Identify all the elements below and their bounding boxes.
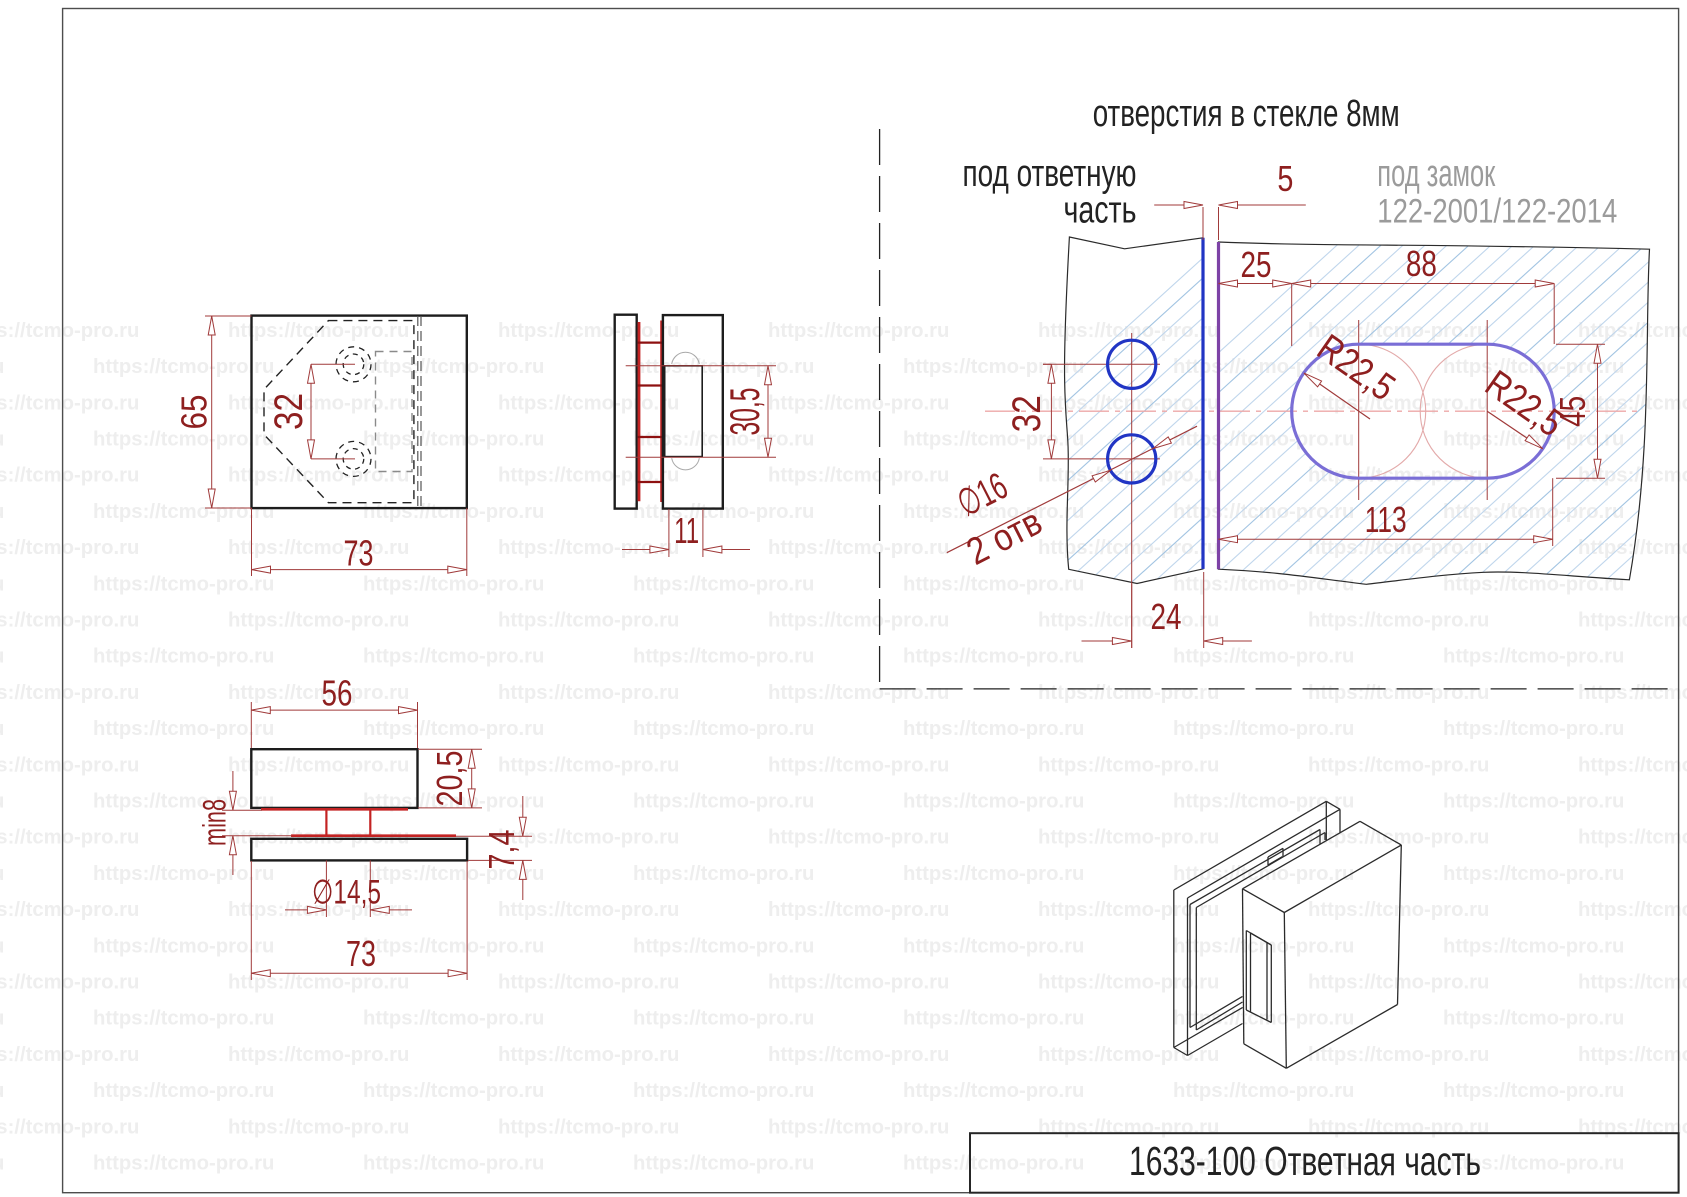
svg-text:https://tcmo-pro.ru: https://tcmo-pro.ru <box>1578 754 1687 776</box>
svg-text:https://tcmo-pro.ru: https://tcmo-pro.ru <box>363 646 544 668</box>
svg-text:https://tcmo-pro.ru: https://tcmo-pro.ru <box>1038 537 1219 559</box>
svg-text:https://tcmo-pro.ru: https://tcmo-pro.ru <box>498 1044 679 1066</box>
svg-text:https://tcmo-pro.ru: https://tcmo-pro.ru <box>363 718 544 740</box>
svg-text:https://tcmo-pro.ru: https://tcmo-pro.ru <box>0 646 4 668</box>
svg-text:https://tcmo-pro.ru: https://tcmo-pro.ru <box>0 429 4 451</box>
svg-text:https://tcmo-pro.ru: https://tcmo-pro.ru <box>1308 682 1489 704</box>
svg-text:https://tcmo-pro.ru: https://tcmo-pro.ru <box>1173 935 1354 957</box>
svg-text:https://tcmo-pro.ru: https://tcmo-pro.ru <box>363 501 544 523</box>
svg-text:https://tcmo-pro.ru: https://tcmo-pro.ru <box>1038 899 1219 921</box>
svg-text:https://tcmo-pro.ru: https://tcmo-pro.ru <box>93 1008 274 1030</box>
svg-text:https://tcmo-pro.ru: https://tcmo-pro.ru <box>0 573 4 595</box>
svg-text:https://tcmo-pro.ru: https://tcmo-pro.ru <box>633 646 814 668</box>
svg-text:https://tcmo-pro.ru: https://tcmo-pro.ru <box>363 1008 544 1030</box>
svg-text:https://tcmo-pro.ru: https://tcmo-pro.ru <box>903 646 1084 668</box>
svg-text:https://tcmo-pro.ru: https://tcmo-pro.ru <box>0 863 4 885</box>
svg-text:https://tcmo-pro.ru: https://tcmo-pro.ru <box>0 972 139 994</box>
svg-text:https://tcmo-pro.ru: https://tcmo-pro.ru <box>1038 754 1219 776</box>
svg-text:https://tcmo-pro.ru: https://tcmo-pro.ru <box>768 827 949 849</box>
svg-text:https://tcmo-pro.ru: https://tcmo-pro.ru <box>228 754 409 776</box>
svg-text:https://tcmo-pro.ru: https://tcmo-pro.ru <box>1308 899 1489 921</box>
svg-text:https://tcmo-pro.ru: https://tcmo-pro.ru <box>768 320 949 342</box>
svg-text:https://tcmo-pro.ru: https://tcmo-pro.ru <box>768 899 949 921</box>
svg-text:https://tcmo-pro.ru: https://tcmo-pro.ru <box>1578 827 1687 849</box>
svg-text:https://tcmo-pro.ru: https://tcmo-pro.ru <box>1443 1008 1624 1030</box>
svg-text:https://tcmo-pro.ru: https://tcmo-pro.ru <box>0 320 139 342</box>
svg-text:https://tcmo-pro.ru: https://tcmo-pro.ru <box>903 935 1084 957</box>
svg-text:https://tcmo-pro.ru: https://tcmo-pro.ru <box>1038 972 1219 994</box>
svg-text:https://tcmo-pro.ru: https://tcmo-pro.ru <box>0 501 4 523</box>
svg-text:https://tcmo-pro.ru: https://tcmo-pro.ru <box>1443 935 1624 957</box>
svg-text:https://tcmo-pro.ru: https://tcmo-pro.ru <box>498 682 679 704</box>
svg-text:32: 32 <box>1005 395 1049 432</box>
svg-text:73: 73 <box>346 933 376 974</box>
svg-text:https://tcmo-pro.ru: https://tcmo-pro.ru <box>903 429 1084 451</box>
svg-text:https://tcmo-pro.ru: https://tcmo-pro.ru <box>228 1044 409 1066</box>
svg-text:https://tcmo-pro.ru: https://tcmo-pro.ru <box>1578 682 1687 704</box>
svg-text:https://tcmo-pro.ru: https://tcmo-pro.ru <box>0 610 139 632</box>
svg-text:https://tcmo-pro.ru: https://tcmo-pro.ru <box>1443 573 1624 595</box>
svg-text:https://tcmo-pro.ru: https://tcmo-pro.ru <box>1173 573 1354 595</box>
svg-text:7,4: 7,4 <box>481 830 522 870</box>
svg-text:https://tcmo-pro.ru: https://tcmo-pro.ru <box>228 972 409 994</box>
svg-text:https://tcmo-pro.ru: https://tcmo-pro.ru <box>228 682 409 704</box>
svg-text:https://tcmo-pro.ru: https://tcmo-pro.ru <box>903 791 1084 813</box>
svg-text:https://tcmo-pro.ru: https://tcmo-pro.ru <box>0 754 139 776</box>
svg-text:https://tcmo-pro.ru: https://tcmo-pro.ru <box>1038 610 1219 632</box>
svg-text:https://tcmo-pro.ru: https://tcmo-pro.ru <box>903 1080 1084 1102</box>
svg-text:https://tcmo-pro.ru: https://tcmo-pro.ru <box>498 610 679 632</box>
svg-text:https://tcmo-pro.ru: https://tcmo-pro.ru <box>0 356 4 378</box>
svg-text:https://tcmo-pro.ru: https://tcmo-pro.ru <box>1443 791 1624 813</box>
svg-text:https://tcmo-pro.ru: https://tcmo-pro.ru <box>0 935 4 957</box>
svg-text:https://tcmo-pro.ru: https://tcmo-pro.ru <box>903 863 1084 885</box>
svg-text:https://tcmo-pro.ru: https://tcmo-pro.ru <box>363 935 544 957</box>
svg-text:https://tcmo-pro.ru: https://tcmo-pro.ru <box>1578 972 1687 994</box>
svg-text:113: 113 <box>1365 499 1407 540</box>
svg-text:32: 32 <box>267 393 311 430</box>
svg-text:https://tcmo-pro.ru: https://tcmo-pro.ru <box>0 1080 4 1102</box>
svg-text:https://tcmo-pro.ru: https://tcmo-pro.ru <box>1038 682 1219 704</box>
svg-text:https://tcmo-pro.ru: https://tcmo-pro.ru <box>0 1044 139 1066</box>
svg-text:https://tcmo-pro.ru: https://tcmo-pro.ru <box>633 791 814 813</box>
svg-text:https://tcmo-pro.ru: https://tcmo-pro.ru <box>1308 1044 1489 1066</box>
svg-text:https://tcmo-pro.ru: https://tcmo-pro.ru <box>0 1116 139 1138</box>
svg-text:https://tcmo-pro.ru: https://tcmo-pro.ru <box>903 718 1084 740</box>
svg-text:https://tcmo-pro.ru: https://tcmo-pro.ru <box>0 1008 4 1030</box>
svg-text:https://tcmo-pro.ru: https://tcmo-pro.ru <box>1308 827 1489 849</box>
svg-text:https://tcmo-pro.ru: https://tcmo-pro.ru <box>633 573 814 595</box>
svg-text:https://tcmo-pro.ru: https://tcmo-pro.ru <box>228 537 409 559</box>
svg-text:https://tcmo-pro.ru: https://tcmo-pro.ru <box>768 465 949 487</box>
svg-text:https://tcmo-pro.ru: https://tcmo-pro.ru <box>0 537 139 559</box>
svg-text:https://tcmo-pro.ru: https://tcmo-pro.ru <box>363 573 544 595</box>
svg-text:https://tcmo-pro.ru: https://tcmo-pro.ru <box>1443 718 1624 740</box>
svg-text:https://tcmo-pro.ru: https://tcmo-pro.ru <box>93 863 274 885</box>
svg-text:https://tcmo-pro.ru: https://tcmo-pro.ru <box>1173 1080 1354 1102</box>
svg-text:https://tcmo-pro.ru: https://tcmo-pro.ru <box>1443 646 1624 668</box>
svg-text:https://tcmo-pro.ru: https://tcmo-pro.ru <box>498 320 679 342</box>
svg-text:https://tcmo-pro.ru: https://tcmo-pro.ru <box>498 392 679 414</box>
svg-text:https://tcmo-pro.ru: https://tcmo-pro.ru <box>768 972 949 994</box>
svg-text:https://tcmo-pro.ru: https://tcmo-pro.ru <box>363 429 544 451</box>
svg-text:https://tcmo-pro.ru: https://tcmo-pro.ru <box>93 501 274 523</box>
svg-text:88: 88 <box>1406 243 1437 284</box>
svg-text:25: 25 <box>1241 244 1272 285</box>
svg-text:https://tcmo-pro.ru: https://tcmo-pro.ru <box>768 682 949 704</box>
svg-text:https://tcmo-pro.ru: https://tcmo-pro.ru <box>633 935 814 957</box>
svg-text:https://tcmo-pro.ru: https://tcmo-pro.ru <box>0 899 139 921</box>
svg-text:https://tcmo-pro.ru: https://tcmo-pro.ru <box>0 791 4 813</box>
svg-text:https://tcmo-pro.ru: https://tcmo-pro.ru <box>0 682 139 704</box>
svg-text:https://tcmo-pro.ru: https://tcmo-pro.ru <box>633 1153 814 1175</box>
svg-text:5: 5 <box>1277 158 1293 199</box>
svg-text:отверстия в стекле 8мм: отверстия в стекле 8мм <box>1093 93 1400 135</box>
svg-text:https://tcmo-pro.ru: https://tcmo-pro.ru <box>228 465 409 487</box>
svg-text:https://tcmo-pro.ru: https://tcmo-pro.ru <box>768 610 949 632</box>
svg-text:https://tcmo-pro.ru: https://tcmo-pro.ru <box>228 1116 409 1138</box>
svg-text:20,5: 20,5 <box>429 751 470 807</box>
svg-text:min8: min8 <box>197 799 233 846</box>
svg-text:https://tcmo-pro.ru: https://tcmo-pro.ru <box>0 718 4 740</box>
svg-text:https://tcmo-pro.ru: https://tcmo-pro.ru <box>1038 1116 1219 1138</box>
svg-text:https://tcmo-pro.ru: https://tcmo-pro.ru <box>633 863 814 885</box>
svg-text:https://tcmo-pro.ru: https://tcmo-pro.ru <box>1308 754 1489 776</box>
svg-text:122-2001/122-2014: 122-2001/122-2014 <box>1377 193 1617 231</box>
svg-text:https://tcmo-pro.ru: https://tcmo-pro.ru <box>1578 1116 1687 1138</box>
svg-text:https://tcmo-pro.ru: https://tcmo-pro.ru <box>498 465 679 487</box>
svg-text:https://tcmo-pro.ru: https://tcmo-pro.ru <box>93 1153 274 1175</box>
svg-text:https://tcmo-pro.ru: https://tcmo-pro.ru <box>0 1153 4 1175</box>
svg-text:30,5: 30,5 <box>721 388 768 436</box>
svg-text:часть: часть <box>1064 190 1137 232</box>
svg-text:https://tcmo-pro.ru: https://tcmo-pro.ru <box>903 1153 1084 1175</box>
svg-text:https://tcmo-pro.ru: https://tcmo-pro.ru <box>498 1116 679 1138</box>
svg-text:https://tcmo-pro.ru: https://tcmo-pro.ru <box>363 356 544 378</box>
svg-text:∅14,5: ∅14,5 <box>312 874 381 912</box>
svg-text:https://tcmo-pro.ru: https://tcmo-pro.ru <box>498 899 679 921</box>
svg-text:https://tcmo-pro.ru: https://tcmo-pro.ru <box>903 356 1084 378</box>
svg-text:https://tcmo-pro.ru: https://tcmo-pro.ru <box>1443 1080 1624 1102</box>
svg-text:https://tcmo-pro.ru: https://tcmo-pro.ru <box>1578 1044 1687 1066</box>
svg-text:https://tcmo-pro.ru: https://tcmo-pro.ru <box>768 1044 949 1066</box>
svg-text:https://tcmo-pro.ru: https://tcmo-pro.ru <box>1578 610 1687 632</box>
svg-text:https://tcmo-pro.ru: https://tcmo-pro.ru <box>498 754 679 776</box>
svg-text:https://tcmo-pro.ru: https://tcmo-pro.ru <box>363 1080 544 1102</box>
svg-text:https://tcmo-pro.ru: https://tcmo-pro.ru <box>768 754 949 776</box>
svg-text:https://tcmo-pro.ru: https://tcmo-pro.ru <box>363 1153 544 1175</box>
svg-text:под замок: под замок <box>1377 153 1495 195</box>
svg-text:https://tcmo-pro.ru: https://tcmo-pro.ru <box>228 610 409 632</box>
svg-text:https://tcmo-pro.ru: https://tcmo-pro.ru <box>93 356 274 378</box>
svg-text:https://tcmo-pro.ru: https://tcmo-pro.ru <box>633 1080 814 1102</box>
svg-text:https://tcmo-pro.ru: https://tcmo-pro.ru <box>228 392 409 414</box>
svg-text:https://tcmo-pro.ru: https://tcmo-pro.ru <box>93 791 274 813</box>
svg-text:73: 73 <box>344 532 374 573</box>
svg-text:https://tcmo-pro.ru: https://tcmo-pro.ru <box>93 1080 274 1102</box>
svg-text:https://tcmo-pro.ru: https://tcmo-pro.ru <box>93 573 274 595</box>
svg-text:https://tcmo-pro.ru: https://tcmo-pro.ru <box>93 646 274 668</box>
svg-text:https://tcmo-pro.ru: https://tcmo-pro.ru <box>1308 610 1489 632</box>
svg-text:https://tcmo-pro.ru: https://tcmo-pro.ru <box>93 718 274 740</box>
svg-text:https://tcmo-pro.ru: https://tcmo-pro.ru <box>1173 718 1354 740</box>
svg-text:https://tcmo-pro.ru: https://tcmo-pro.ru <box>768 537 949 559</box>
svg-text:https://tcmo-pro.ru: https://tcmo-pro.ru <box>498 827 679 849</box>
svg-text:https://tcmo-pro.ru: https://tcmo-pro.ru <box>0 827 139 849</box>
svg-text:https://tcmo-pro.ru: https://tcmo-pro.ru <box>93 429 274 451</box>
svg-text:https://tcmo-pro.ru: https://tcmo-pro.ru <box>1173 646 1354 668</box>
svg-text:https://tcmo-pro.ru: https://tcmo-pro.ru <box>1308 1116 1489 1138</box>
svg-text:https://tcmo-pro.ru: https://tcmo-pro.ru <box>0 392 139 414</box>
svg-text:https://tcmo-pro.ru: https://tcmo-pro.ru <box>768 392 949 414</box>
svg-text:24: 24 <box>1151 596 1182 637</box>
svg-text:https://tcmo-pro.ru: https://tcmo-pro.ru <box>1038 827 1219 849</box>
svg-text:https://tcmo-pro.ru: https://tcmo-pro.ru <box>1038 1044 1219 1066</box>
svg-text:https://tcmo-pro.ru: https://tcmo-pro.ru <box>633 718 814 740</box>
svg-text:https://tcmo-pro.ru: https://tcmo-pro.ru <box>903 1008 1084 1030</box>
svg-text:https://tcmo-pro.ru: https://tcmo-pro.ru <box>903 573 1084 595</box>
svg-text:https://tcmo-pro.ru: https://tcmo-pro.ru <box>0 465 139 487</box>
svg-text:65: 65 <box>174 395 215 430</box>
svg-text:https://tcmo-pro.ru: https://tcmo-pro.ru <box>1578 899 1687 921</box>
svg-text:1633-100 Ответная часть: 1633-100 Ответная часть <box>1129 1138 1481 1184</box>
svg-text:https://tcmo-pro.ru: https://tcmo-pro.ru <box>498 972 679 994</box>
svg-text:11: 11 <box>674 510 699 551</box>
svg-text:56: 56 <box>322 673 353 714</box>
svg-text:https://tcmo-pro.ru: https://tcmo-pro.ru <box>633 1008 814 1030</box>
svg-text:https://tcmo-pro.ru: https://tcmo-pro.ru <box>768 1116 949 1138</box>
svg-text:https://tcmo-pro.ru: https://tcmo-pro.ru <box>93 935 274 957</box>
svg-text:https://tcmo-pro.ru: https://tcmo-pro.ru <box>1443 863 1624 885</box>
